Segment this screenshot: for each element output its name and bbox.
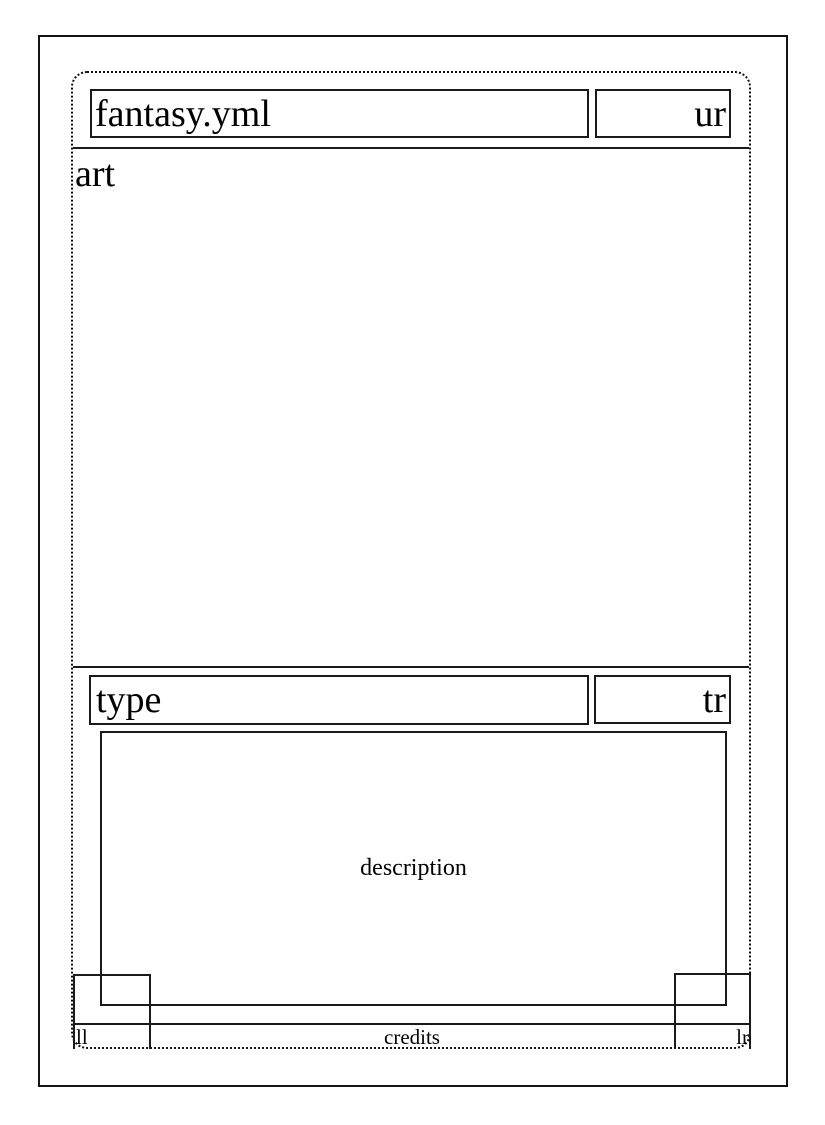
title-name-box: fantasy.yml: [90, 89, 589, 138]
type-right-box: tr: [594, 675, 731, 724]
type-box: type: [89, 675, 589, 725]
credits-bar: ll credits lr: [73, 1023, 751, 1049]
credits-label: credits: [73, 1025, 751, 1050]
upper-right-box: ur: [595, 89, 731, 138]
art-region-label: art: [75, 153, 115, 195]
description-region-label: description: [360, 855, 467, 882]
description-region: description: [100, 731, 727, 1006]
art-region: art: [73, 147, 749, 668]
card-template-preview-page: fantasy.yml ur art type tr description l…: [0, 0, 825, 1125]
lower-right-label: lr: [736, 1025, 749, 1050]
